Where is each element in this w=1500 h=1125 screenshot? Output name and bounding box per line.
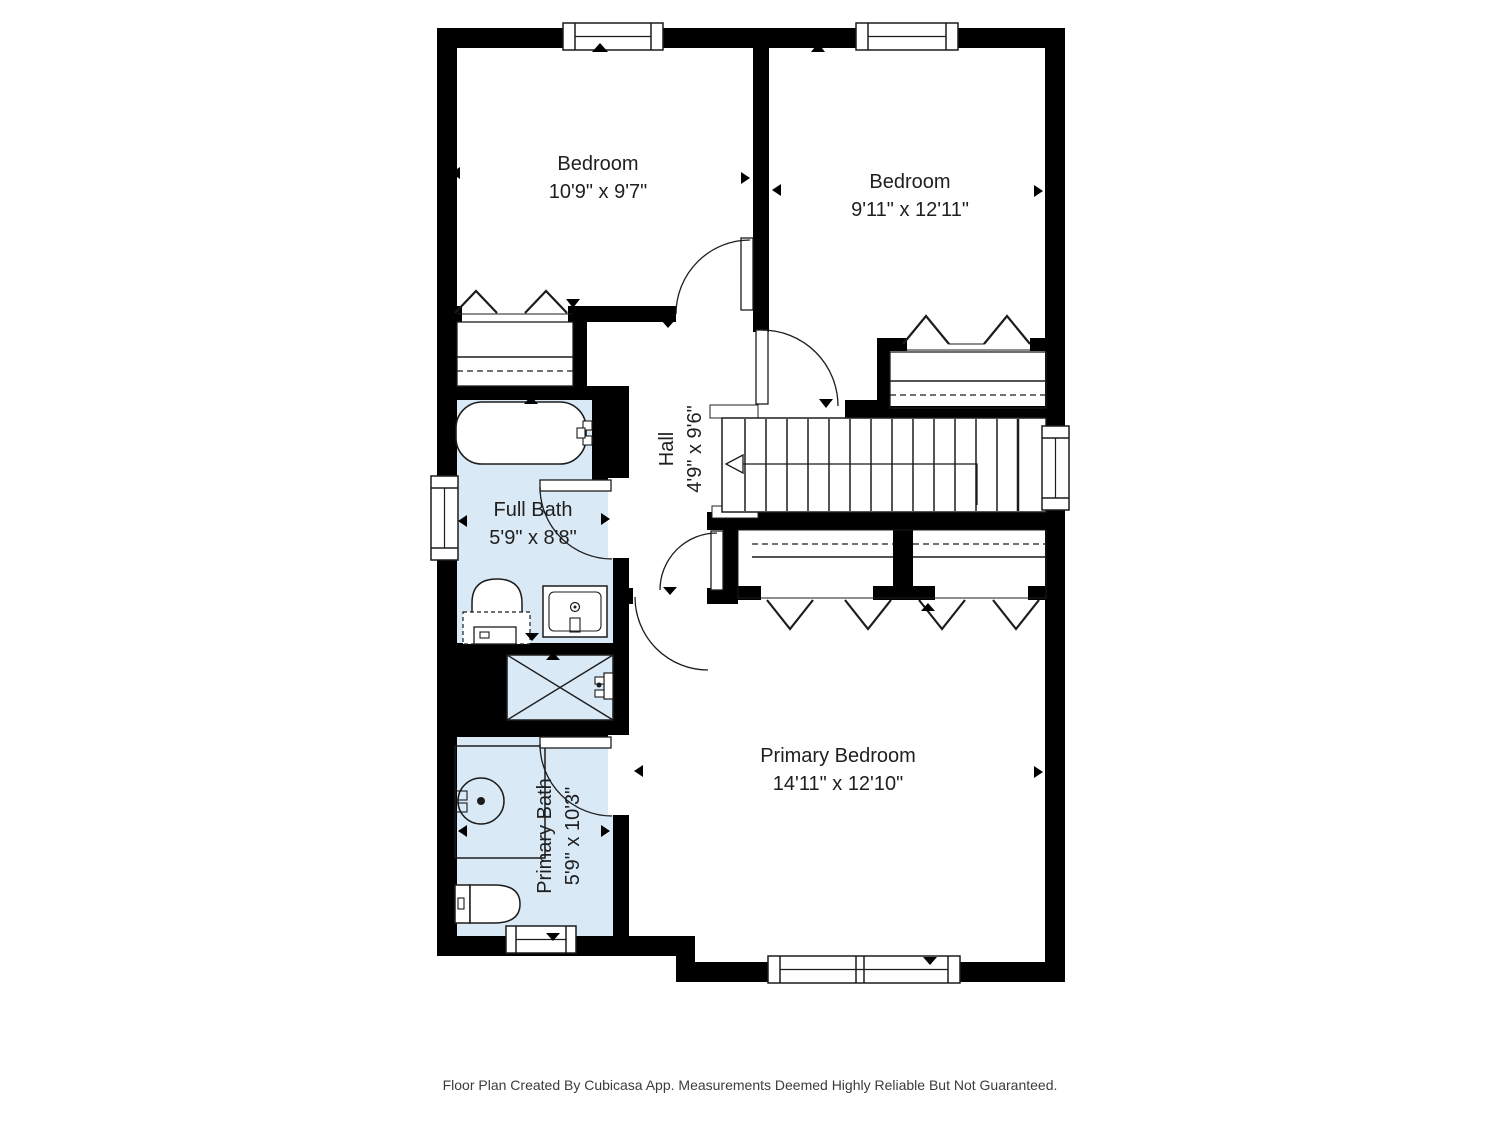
room-label-primary-bedroom: Primary Bedroom 14'11" x 12'10" xyxy=(760,742,916,798)
room-name: Primary Bedroom xyxy=(760,742,916,770)
fixture-toilet-primary-bath xyxy=(455,885,520,923)
room-label-bedroom-right: Bedroom 9'11" x 12'11" xyxy=(851,168,969,224)
room-label-hall: Hall 4'9" x 9'6" xyxy=(653,405,709,492)
door-hall-stairs xyxy=(660,531,723,590)
fixture-sink-full-bath xyxy=(543,586,607,637)
room-dimensions: 9'11" x 12'11" xyxy=(851,196,969,224)
room-name: Bedroom xyxy=(851,168,969,196)
floor-plan-drawing xyxy=(0,0,1500,1125)
window-bedroom-right-top xyxy=(856,23,958,50)
room-label-primary-bath: Primary Bath 5'9" x 10'3" xyxy=(531,778,587,894)
room-label-bedroom-left: Bedroom 10'9" x 9'7" xyxy=(549,150,648,206)
door-bedroom-left xyxy=(676,238,753,314)
closet-primary-bedroom xyxy=(738,530,1046,629)
window-stairs-right xyxy=(1042,426,1069,510)
room-label-full-bath: Full Bath 5'9" x 8'8" xyxy=(489,496,576,552)
stairs xyxy=(722,418,1046,512)
closet-bedroom-left xyxy=(455,291,573,386)
room-dimensions: 4'9" x 9'6" xyxy=(681,405,709,492)
room-dimensions: 5'9" x 8'8" xyxy=(489,524,576,552)
footer-disclaimer: Floor Plan Created By Cubicasa App. Meas… xyxy=(0,1077,1500,1093)
floor-plan-canvas: Bedroom 10'9" x 9'7" Bedroom 9'11" x 12'… xyxy=(0,0,1500,1125)
window-full-bath-left xyxy=(431,476,458,560)
fixture-bathtub xyxy=(456,402,592,464)
room-name: Hall xyxy=(653,405,681,492)
room-name: Primary Bath xyxy=(531,778,559,894)
room-name: Full Bath xyxy=(489,496,576,524)
window-primary-bath-bottom xyxy=(506,926,576,953)
room-dimensions: 14'11" x 12'10" xyxy=(760,770,916,798)
room-dimensions: 5'9" x 10'3" xyxy=(559,778,587,894)
closet-bedroom-right xyxy=(890,316,1046,408)
door-primary-bedroom xyxy=(635,597,708,670)
window-bedroom-left-top xyxy=(563,23,663,50)
room-name: Bedroom xyxy=(549,150,648,178)
door-bedroom-right xyxy=(756,330,838,406)
room-dimensions: 10'9" x 9'7" xyxy=(549,178,648,206)
